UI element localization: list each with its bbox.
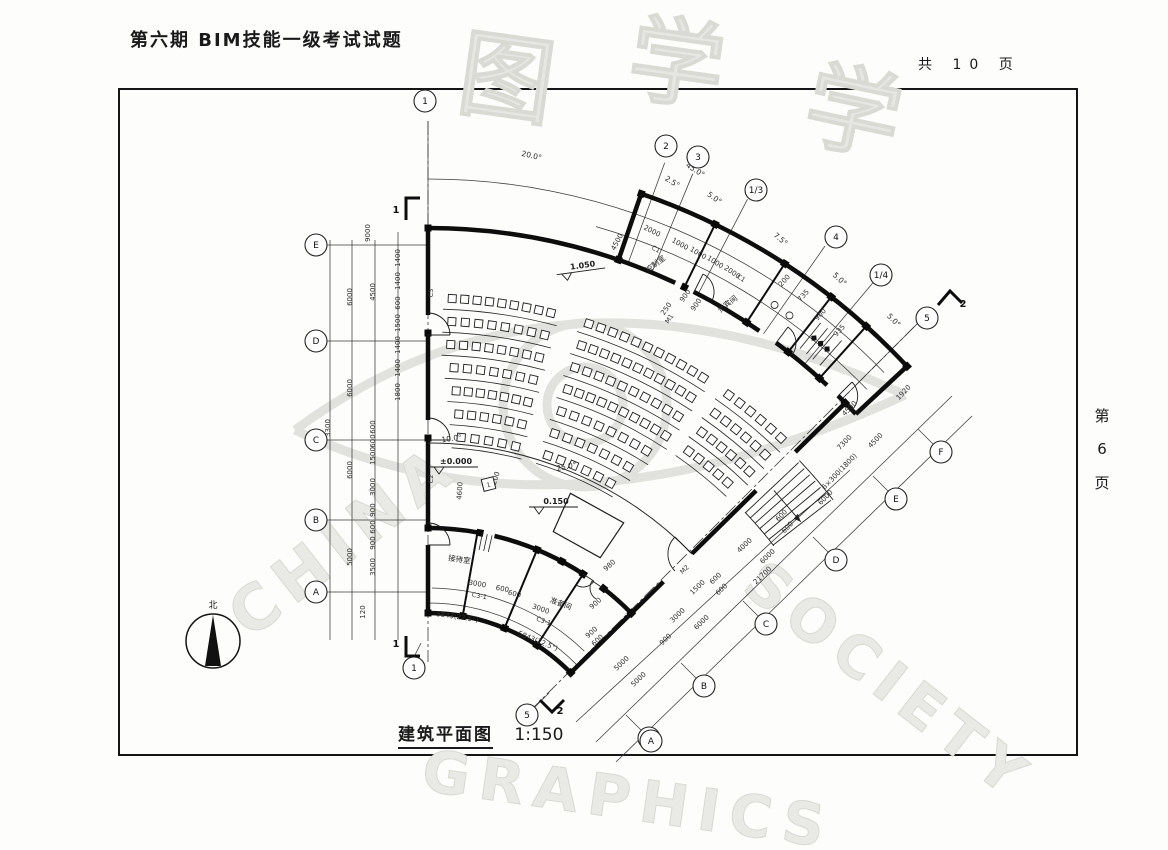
wall <box>495 536 584 574</box>
seat <box>722 477 733 488</box>
column <box>425 610 432 617</box>
watermark-en-graphics: GRAPHICS <box>418 737 839 850</box>
seat <box>607 402 618 413</box>
seat <box>489 367 498 376</box>
section-label: 1 <box>393 205 400 216</box>
seat <box>683 446 694 457</box>
angle-dimension-label: 5.0° <box>831 271 849 288</box>
axis-bubble-label: 2 <box>663 142 669 152</box>
seat <box>713 469 724 480</box>
seat <box>527 327 537 337</box>
watermark-cn-char: 学 <box>622 4 731 126</box>
seat <box>448 317 456 325</box>
side-page-number: 第 6 页 <box>1090 405 1114 493</box>
detail-line <box>838 382 852 396</box>
axis-bubble-label: A <box>313 588 320 598</box>
seat <box>517 419 527 429</box>
seat <box>765 423 776 434</box>
seat <box>676 359 687 370</box>
seat <box>675 385 686 396</box>
seat <box>467 411 476 420</box>
seat <box>470 434 479 443</box>
seat <box>476 389 485 398</box>
elevation-label: ±0.000 <box>440 457 472 466</box>
dimension-label: 1500 <box>369 447 377 465</box>
dimension-label: 1400 <box>394 272 402 290</box>
watermark-cn-char: 图 <box>452 19 561 141</box>
seat <box>734 397 745 408</box>
wall <box>463 532 478 616</box>
axis-bubble-label: 5 <box>924 314 930 324</box>
seat <box>599 449 610 460</box>
north-arrow-icon <box>205 615 221 666</box>
exam-page: 第六期 BIM技能一级考试试题 共 10 页 第 6 页 建筑平面图 1:150… <box>0 0 1168 850</box>
seat <box>497 345 506 354</box>
seat <box>594 421 605 432</box>
seat <box>716 442 727 453</box>
dimension-label: 4600 <box>455 482 464 500</box>
section-marker <box>938 291 962 305</box>
component-tag: C3-1 <box>535 615 552 628</box>
axis-bubble-label: C <box>313 436 319 446</box>
dimension-label: 9000 <box>364 224 372 242</box>
seat <box>543 451 553 461</box>
dimension-label: 5000 <box>612 654 630 672</box>
seat <box>581 416 591 426</box>
seat <box>534 305 544 315</box>
seat <box>557 407 567 417</box>
seat <box>673 411 684 422</box>
wall <box>571 582 664 673</box>
dimension-label: 6×300(1800) <box>820 452 859 492</box>
wall <box>619 194 642 260</box>
seat <box>455 410 464 419</box>
seat <box>723 389 734 400</box>
seat <box>546 308 556 318</box>
drawing-caption: 建筑平面图 1:150 <box>398 720 563 745</box>
axis-bubble-label: 1 <box>411 664 417 674</box>
seat <box>569 411 579 421</box>
seat <box>501 323 510 332</box>
dimension-label: 980 <box>602 558 617 573</box>
seat <box>473 296 482 305</box>
dimension-label: 600 <box>369 434 377 447</box>
wc-fixture <box>824 346 829 351</box>
seat <box>488 390 497 399</box>
dimension-label: 900 <box>678 288 692 304</box>
dimension-label: 935 <box>832 323 847 338</box>
seat <box>665 353 676 364</box>
seat <box>484 436 493 445</box>
seat <box>740 432 751 443</box>
seat <box>745 406 756 417</box>
seat <box>461 318 470 327</box>
axis-bubble-label: 1/3 <box>749 186 763 196</box>
dimension-label: 900 <box>588 596 603 611</box>
seat <box>599 349 609 359</box>
dimension-label: 6000 <box>346 288 354 306</box>
seat <box>487 321 496 330</box>
wall <box>694 292 760 331</box>
seat <box>511 395 520 404</box>
seat <box>720 416 731 427</box>
column <box>425 525 432 532</box>
seat <box>581 465 592 476</box>
column <box>476 529 484 537</box>
column <box>425 225 432 232</box>
dimension-line <box>681 663 696 678</box>
detail-line <box>488 535 492 552</box>
section-label: 1 <box>393 639 400 650</box>
north-label: 北 <box>208 600 217 611</box>
section-label: 2 <box>557 706 564 717</box>
seat <box>476 366 485 375</box>
axis-bubble-label: 1 <box>422 97 428 107</box>
axis-bubble-label: D <box>313 337 320 347</box>
elevation-mark-icon <box>529 507 578 514</box>
seat <box>497 439 506 448</box>
seat <box>510 301 519 310</box>
seat <box>460 295 469 304</box>
dimension-label: 5000 <box>629 670 647 688</box>
detail-line <box>484 534 488 551</box>
detail-line <box>750 469 804 518</box>
dimension-label: 5843(22.5°) <box>436 610 479 624</box>
dimension-label: 1400 <box>394 359 402 377</box>
seat <box>628 386 639 397</box>
seat <box>472 342 481 351</box>
seat <box>540 330 550 340</box>
dimension-label: 7300 <box>835 433 853 451</box>
wc-fixture <box>818 341 823 346</box>
angle-dimension-label: 20.0° <box>521 149 543 162</box>
wc-fixture <box>811 335 816 340</box>
seat <box>480 412 489 421</box>
dimension-label: 4500 <box>866 431 884 449</box>
angle-dimension-label: 7.5° <box>772 231 790 248</box>
dimension-label: 600 <box>369 520 377 533</box>
dimension-label: 900 <box>813 307 828 322</box>
axis-bubble-label: 4 <box>833 233 839 243</box>
seat <box>500 392 509 401</box>
seat <box>643 368 654 379</box>
dimension-label: 120 <box>359 605 367 618</box>
axis-bubble-label: E <box>893 495 899 505</box>
seat <box>505 417 514 426</box>
seat <box>640 418 651 429</box>
dimension-label: 4000 <box>735 536 753 554</box>
component-tag: C3 <box>427 289 435 298</box>
wall <box>747 264 785 323</box>
seat <box>611 455 622 466</box>
wc-basin <box>786 312 793 319</box>
seat <box>523 397 533 407</box>
seat <box>497 299 506 308</box>
section-marker <box>406 636 420 656</box>
watermark-en-china: CHINA <box>214 428 472 652</box>
seat <box>515 372 524 381</box>
dimension-label: 1000 <box>670 236 689 252</box>
wall <box>428 528 480 533</box>
seat <box>611 353 621 363</box>
wall <box>788 297 831 352</box>
section-label: 2 <box>960 299 967 310</box>
seat <box>447 340 455 348</box>
dimension-line <box>626 715 641 730</box>
seat <box>574 388 584 398</box>
dimension-label: 735 <box>796 288 811 303</box>
dimension-label: 6000 <box>346 461 354 479</box>
seat <box>710 408 721 419</box>
seat <box>698 372 709 383</box>
axis-bubble-label: B <box>701 682 707 692</box>
total-pages-label: 共 10 页 <box>918 54 1021 74</box>
axis-bubble-label: B <box>313 516 319 526</box>
seat <box>492 414 501 423</box>
seat <box>651 398 662 409</box>
dimension-label: 3000 <box>668 606 686 624</box>
axis-bubble-label: F <box>938 448 943 458</box>
dimension-label: 900 <box>369 536 377 549</box>
wall <box>428 228 619 260</box>
seat <box>522 303 531 312</box>
seat <box>633 363 644 374</box>
dimension-label: 5000 <box>346 548 354 566</box>
floor-plan-svg: 图 学 学 CHINA GRAPHICS SOCIETY 90006000450… <box>0 0 1168 850</box>
detail-line <box>773 500 831 545</box>
dimension-label: 600 <box>714 582 729 597</box>
seat <box>484 343 493 352</box>
detail-line <box>675 537 692 554</box>
seat <box>618 432 629 443</box>
axis-bubble-label: 3 <box>695 153 701 163</box>
dimension-line <box>813 537 828 552</box>
seat <box>511 442 521 452</box>
detail-line <box>694 274 703 292</box>
dimension-label: 3000 <box>468 579 487 590</box>
caption-text: 建筑平面图 <box>398 725 493 749</box>
seat <box>640 392 651 403</box>
wc-basin <box>771 301 778 308</box>
dimension-label: 3000 <box>531 602 550 615</box>
watermark: 图 学 学 CHINA GRAPHICS SOCIETY <box>214 4 1046 850</box>
dimension-label: 600 <box>507 589 522 600</box>
seat <box>577 341 587 351</box>
dimension-label: 3000 <box>369 478 377 496</box>
dimension-label: 4500 <box>369 283 377 301</box>
seat <box>563 384 573 394</box>
axis-bubble-label: 1/4 <box>874 271 889 281</box>
dimension-label: 1500 <box>394 314 402 332</box>
seat <box>474 319 483 328</box>
dimension-line <box>873 476 888 491</box>
seat <box>685 392 696 403</box>
detail-line <box>776 327 788 343</box>
seat <box>510 347 519 356</box>
watermark-en-society: SOCIETY <box>731 547 1046 814</box>
dimension-line <box>918 429 933 444</box>
axis-bubble-label: A <box>648 737 655 747</box>
component-tag: C2 <box>427 475 435 484</box>
component-tag: M2 <box>678 563 691 576</box>
seat <box>629 439 640 450</box>
side-page-suffix: 页 <box>1090 472 1114 493</box>
dimension-label: 2000 <box>642 224 662 239</box>
section-marker <box>406 198 420 220</box>
dimension-label: 3500 <box>369 558 377 576</box>
seat <box>730 424 741 435</box>
seat <box>448 294 456 302</box>
room-label: 接待室 <box>448 553 472 566</box>
page-title: 第六期 BIM技能一级考试试题 <box>130 26 403 52</box>
column <box>425 330 432 337</box>
detail-line <box>590 581 596 599</box>
seat <box>755 414 766 425</box>
watermark-cn-char: 学 <box>795 50 911 177</box>
wall <box>604 588 632 613</box>
dimension-label: 1500 <box>688 578 706 596</box>
angle-dimension-label: 5.0° <box>885 312 903 330</box>
seat <box>485 297 494 306</box>
room-label: 控制室 <box>643 252 667 274</box>
dimension-label: 600 <box>369 420 377 433</box>
seat <box>459 341 468 350</box>
angle-dimension-label: 10.0° <box>441 433 463 445</box>
dimension-label: 600 <box>394 296 402 309</box>
seat <box>534 353 544 363</box>
detail-line <box>592 581 603 588</box>
component-tag: C3-1 <box>471 591 487 602</box>
seat <box>514 325 523 334</box>
side-page-number-value: 6 <box>1090 440 1114 458</box>
angle-dimension-label: 2.5° <box>663 174 681 190</box>
angle-dimension-label: 5.0° <box>705 190 723 207</box>
seat <box>585 392 595 402</box>
seat <box>463 364 472 373</box>
detail-line <box>800 323 821 349</box>
dimension-label: 600 <box>774 508 789 523</box>
axis-bubble-label: D <box>833 556 840 566</box>
seat <box>464 388 473 397</box>
dimension-label: 1400 <box>394 336 402 354</box>
dimension-label: 6000 <box>692 613 710 631</box>
seat <box>596 397 606 407</box>
caption-scale: 1:150 <box>514 725 563 745</box>
dimension-label: 1400 <box>394 249 402 267</box>
dimension-label: 6000 <box>346 379 354 397</box>
seat <box>522 350 532 360</box>
side-page-prefix: 第 <box>1090 405 1114 426</box>
seat <box>452 387 461 396</box>
dimension-label: 1000 <box>705 254 724 270</box>
seat <box>528 375 538 385</box>
dimension-label: 200 <box>777 273 792 288</box>
seat <box>687 366 698 377</box>
seat <box>622 358 633 369</box>
dimension-label: 900 <box>369 503 377 516</box>
column <box>425 435 432 442</box>
elevation-label: 0.150 <box>543 497 569 506</box>
axis-bubble-label: E <box>313 241 319 251</box>
seat <box>696 427 707 438</box>
seat <box>744 466 755 477</box>
dimension-label: 900 <box>689 297 703 313</box>
seat <box>450 364 458 372</box>
dimension-label: 1800 <box>394 383 402 401</box>
seat <box>588 344 598 354</box>
seat <box>706 434 717 445</box>
axis-bubble-label: C <box>763 620 769 630</box>
seat <box>629 412 640 423</box>
seat <box>502 369 511 378</box>
detail-line <box>668 537 675 571</box>
